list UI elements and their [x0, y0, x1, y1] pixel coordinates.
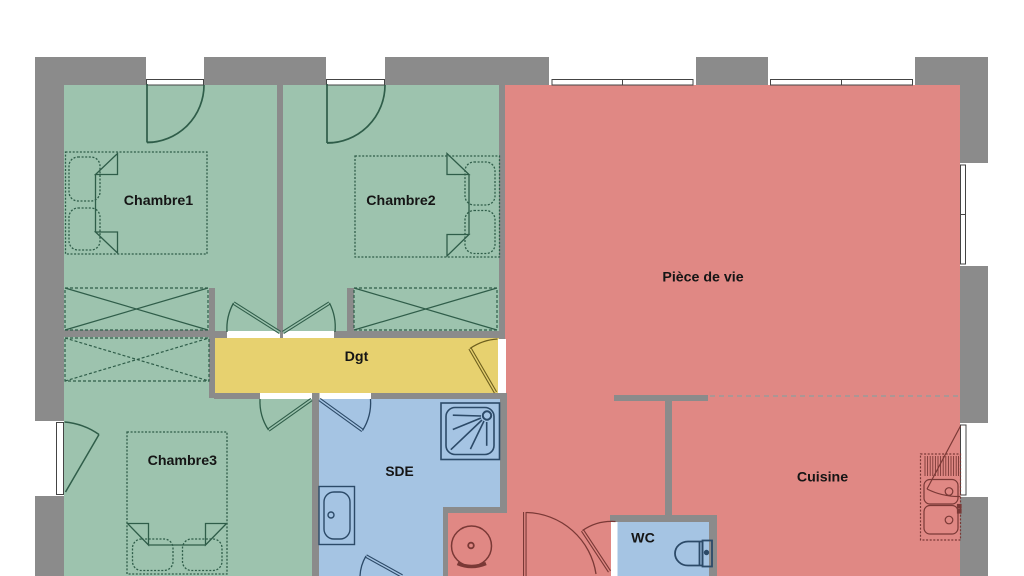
svg-text:Chambre1: Chambre1	[124, 193, 193, 209]
svg-text:SDE: SDE	[385, 464, 413, 479]
svg-text:Chambre2: Chambre2	[366, 193, 435, 209]
svg-text:WC: WC	[631, 531, 655, 547]
svg-text:Pièce de vie: Pièce de vie	[662, 270, 743, 286]
svg-text:Cuisine: Cuisine	[797, 470, 848, 486]
svg-text:Dgt: Dgt	[345, 349, 369, 365]
svg-text:Chambre3: Chambre3	[148, 453, 217, 469]
